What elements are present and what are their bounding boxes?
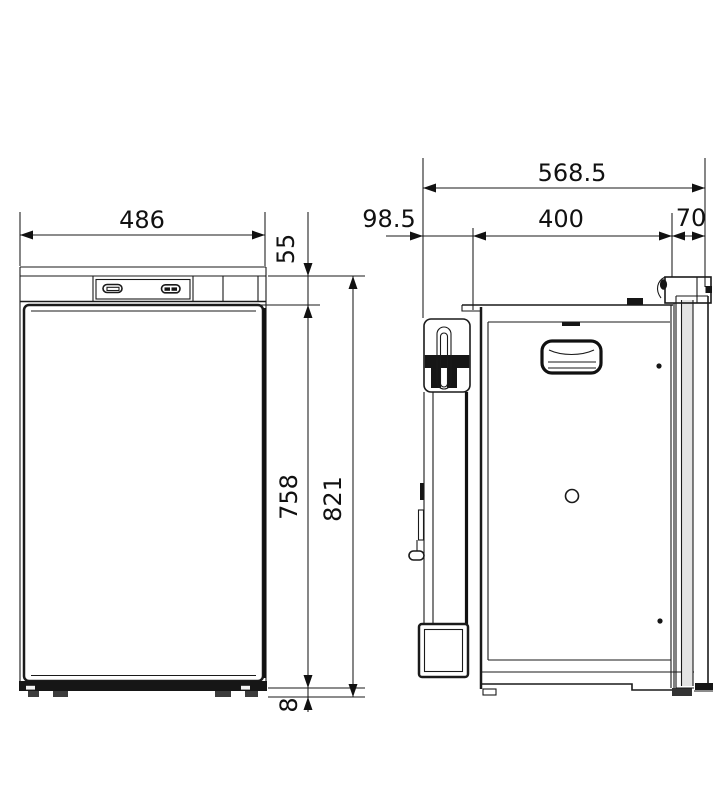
dim-total-height: 821 (319, 276, 358, 697)
screw-dot-lower (657, 618, 662, 623)
back-panel-hole (566, 490, 579, 503)
selector-switch (162, 285, 181, 293)
side-door-bottom-trim (695, 683, 713, 690)
front-bottom-trim (19, 681, 267, 691)
thermostat-knob (103, 285, 122, 293)
dim-top-section: 55 (272, 212, 313, 712)
side-view (409, 277, 713, 696)
top-clip (627, 298, 643, 305)
dim-depth-chain: 98.5 400 70 (362, 204, 706, 241)
front-door (24, 305, 265, 681)
front-control-panel (20, 276, 266, 302)
front-cabinet-sides (20, 302, 266, 682)
front-top-cap (20, 267, 266, 276)
front-door-height-label: 758 (275, 474, 303, 520)
dimension-drawing: 486 55 758 8 821 (0, 0, 728, 800)
side-body (462, 298, 694, 696)
side-dimensions: 568.5 98.5 400 70 (362, 158, 706, 318)
side-door (676, 296, 713, 691)
side-rear-foot (672, 688, 692, 696)
screw-dot-upper (656, 363, 661, 368)
front-feet (28, 691, 258, 697)
front-top-height-label: 55 (272, 234, 300, 265)
dim-width: 486 (20, 206, 265, 266)
gas-connector (409, 551, 424, 560)
side-front-foot (483, 689, 496, 695)
dim-total-depth: 568.5 (423, 159, 705, 193)
trim-notch-left (26, 686, 35, 690)
front-total-height-label: 821 (319, 476, 347, 522)
side-recess-depth-label: 400 (538, 205, 584, 233)
door-hinge (658, 277, 712, 303)
side-total-depth-label: 568.5 (538, 159, 607, 187)
side-rear-depth-label: 98.5 (362, 205, 415, 233)
dim-door-height: 758 (275, 474, 313, 688)
pipe-fitting-upper (420, 483, 424, 500)
top-vent-slot (562, 322, 580, 327)
burner-assembly (409, 319, 470, 677)
dim-plinth: 8 (275, 697, 313, 713)
side-door-thickness-label: 70 (676, 204, 707, 232)
front-width-label: 486 (119, 206, 165, 234)
front-view (19, 267, 267, 697)
trim-notch-right (241, 686, 250, 690)
side-handle (542, 341, 601, 373)
burner-box (419, 624, 468, 677)
pipe-fitting-lower (419, 510, 424, 540)
front-plinth-label: 8 (275, 697, 303, 712)
